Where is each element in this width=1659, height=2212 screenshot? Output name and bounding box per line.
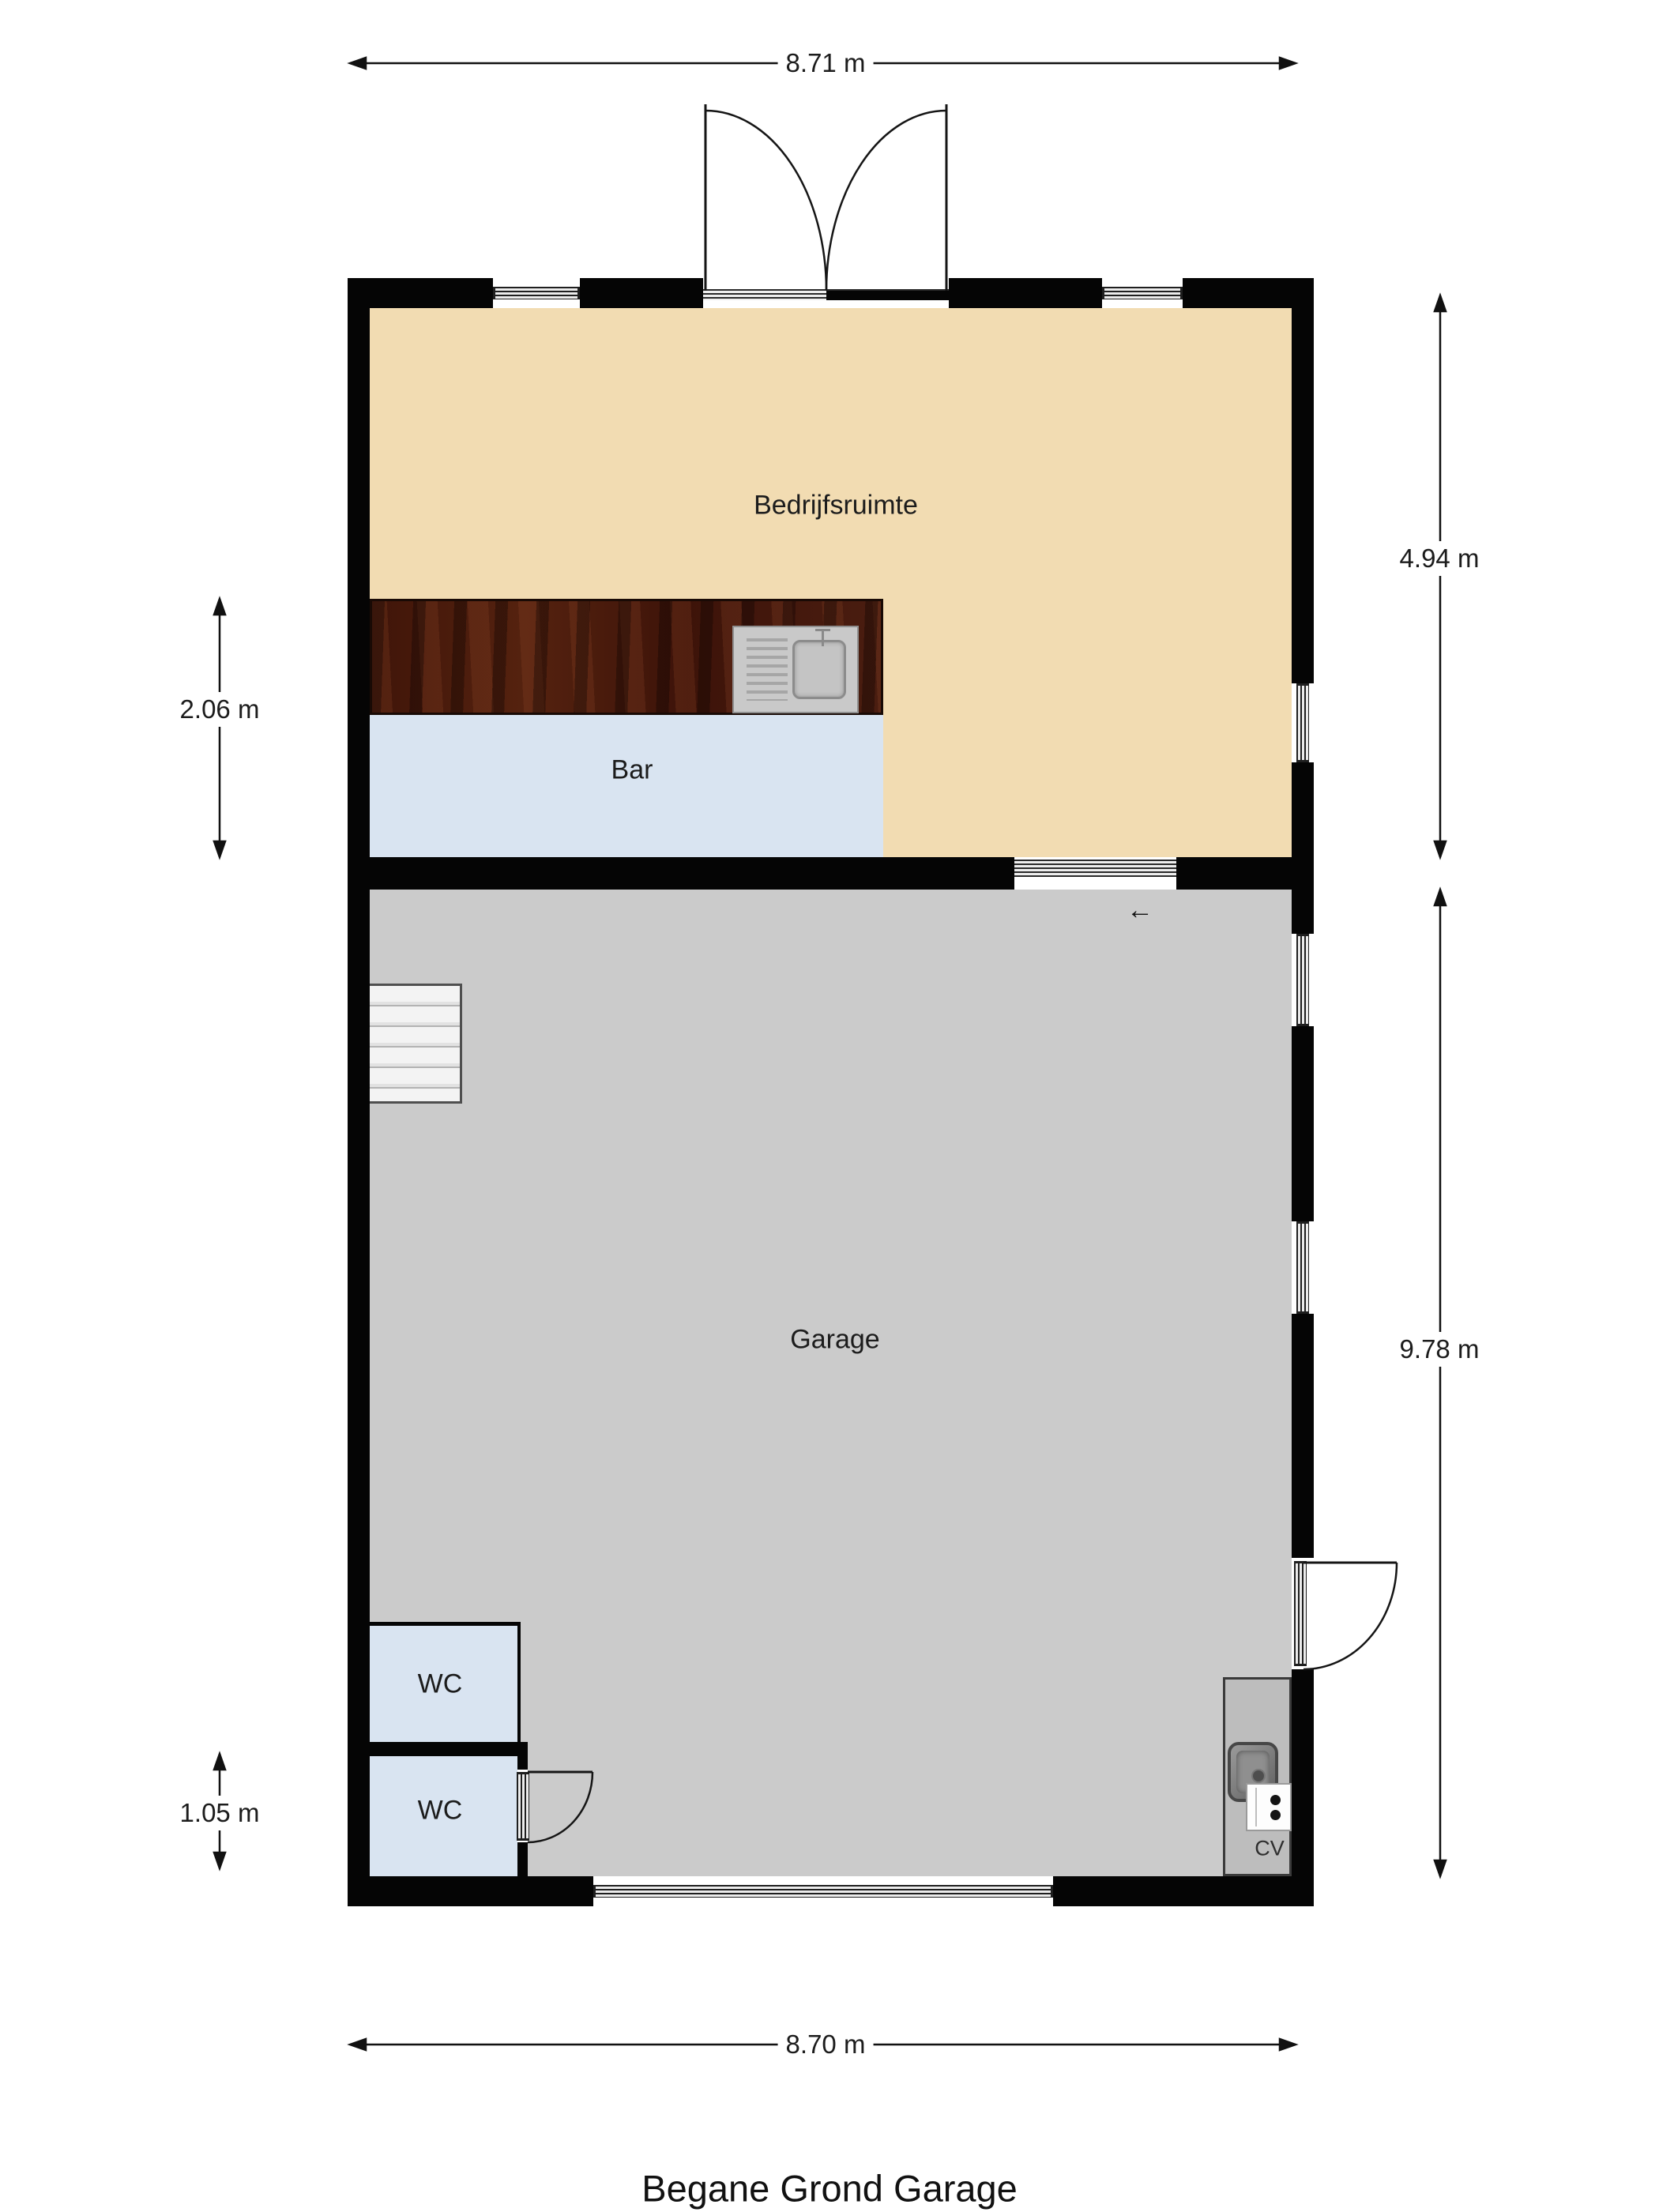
- arrowhead: [1435, 841, 1446, 857]
- arrowhead: [350, 58, 366, 69]
- bedrijfsruimte-floor-upper: [370, 308, 1292, 600]
- window-glass: [1296, 683, 1309, 762]
- side-door-swing-arc: [1303, 1563, 1397, 1669]
- window-glass: [593, 1885, 1053, 1898]
- dim-right-upper-height: 4.94 m: [1392, 541, 1488, 576]
- garage-door-bottom: [593, 1876, 1053, 1906]
- double-door-sill: [826, 291, 949, 300]
- door-panel-glass: [517, 1772, 529, 1841]
- arrowhead: [214, 599, 225, 615]
- arrowhead: [1435, 890, 1446, 905]
- window-glass: [1296, 1221, 1309, 1314]
- double-door-right-swing-arc: [826, 111, 946, 291]
- sink-icon: [732, 626, 859, 713]
- wall-right-1: [1292, 278, 1314, 683]
- wall-wc-right-stub: [517, 1756, 528, 1770]
- arrowhead: [1435, 295, 1446, 311]
- wall-wc-mid: [348, 1742, 528, 1756]
- arrowhead: [1435, 1860, 1446, 1876]
- wc-door-panel: [517, 1772, 529, 1841]
- faucet-bar: [815, 629, 830, 631]
- wall-divider-2: [1176, 857, 1292, 890]
- side-door-panel: [1292, 1561, 1308, 1666]
- bedrijfsruimte-label: Bedrijfsruimte: [754, 491, 918, 521]
- boiler-knob-bottom: [1270, 1810, 1281, 1820]
- wall-wc-right-upper: [517, 1622, 521, 1742]
- door-panel-glass: [1294, 1561, 1307, 1666]
- cv-label: CV: [1255, 1837, 1285, 1861]
- wc-lower-label: WC: [418, 1796, 463, 1826]
- dim-right-lower-height: 9.78 m: [1392, 1332, 1488, 1367]
- wall-wc-right-lower: [517, 1842, 528, 1876]
- wall-right-4: [1292, 1314, 1314, 1558]
- wall-top-3: [949, 278, 1102, 308]
- wall-bottom-2: [1053, 1876, 1314, 1906]
- wall-right-3: [1292, 1026, 1314, 1221]
- cv-sink-drain: [1251, 1769, 1266, 1783]
- boiler-icon: [1246, 1783, 1292, 1831]
- window-glass: [1296, 934, 1309, 1026]
- arrowhead: [214, 1754, 225, 1770]
- bar-label: Bar: [611, 755, 653, 786]
- sink-drainboard: [747, 638, 788, 701]
- window-glass: [493, 287, 580, 299]
- garage-label: Garage: [790, 1325, 879, 1356]
- boiler-knob-top: [1270, 1795, 1281, 1805]
- wall-right-2: [1292, 762, 1314, 934]
- sink-basin: [792, 640, 846, 699]
- wall-top-2: [580, 278, 703, 308]
- arrowhead: [1280, 58, 1296, 69]
- faucet-icon: [822, 629, 824, 646]
- page-title: Begane Grond Garage: [641, 2167, 1018, 2210]
- arrowhead: [1280, 2039, 1296, 2050]
- bar-floor: [370, 715, 883, 857]
- window-top-left: [493, 278, 580, 308]
- window-top-right: [1102, 278, 1183, 308]
- sliding-door-direction-arrow: ←: [1127, 897, 1153, 924]
- wc-upper-label: WC: [418, 1669, 463, 1700]
- stairs: [370, 984, 462, 1104]
- sliding-door-panel: [1014, 860, 1176, 877]
- dim-left-wc-height: 1.05 m: [172, 1796, 268, 1830]
- window-glass: [1102, 287, 1183, 299]
- window-right-bar: [1292, 683, 1314, 762]
- double-door-left-swing-arc: [705, 111, 826, 291]
- dim-top-width: 8.71 m: [778, 46, 874, 81]
- wall-bottom-1: [348, 1876, 593, 1906]
- arrowhead: [214, 1853, 225, 1868]
- wall-divider-1: [370, 857, 1014, 890]
- floorplan-canvas: ←: [0, 0, 1659, 2212]
- window-right-garage-1: [1292, 934, 1314, 1026]
- wall-wc-top: [366, 1622, 517, 1626]
- arrowhead: [350, 2039, 366, 2050]
- bedrijfsruimte-floor-right: [883, 600, 1292, 857]
- wall-left: [348, 278, 370, 1906]
- boiler-divider: [1255, 1788, 1257, 1826]
- dim-left-bar-height: 2.06 m: [172, 692, 268, 727]
- window-right-garage-2: [1292, 1221, 1314, 1314]
- dim-bottom-width: 8.70 m: [778, 2027, 874, 2062]
- wall-right-5: [1292, 1669, 1314, 1906]
- arrowhead: [214, 841, 225, 857]
